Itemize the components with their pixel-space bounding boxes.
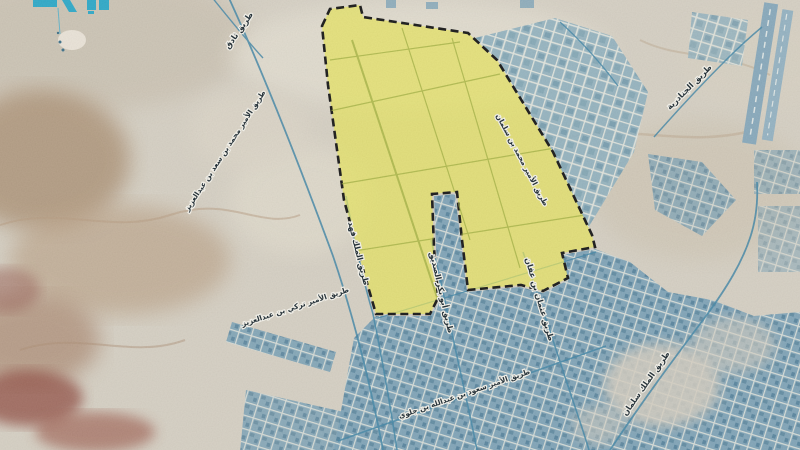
satellite-map: طريق ثادق طريق الأمير محمد بن سعد بن عبد…: [0, 0, 800, 450]
map-screenshot: طريق ثادق طريق الأمير محمد بن سعد بن عبد…: [0, 0, 800, 450]
grain-overlay: [0, 0, 800, 450]
